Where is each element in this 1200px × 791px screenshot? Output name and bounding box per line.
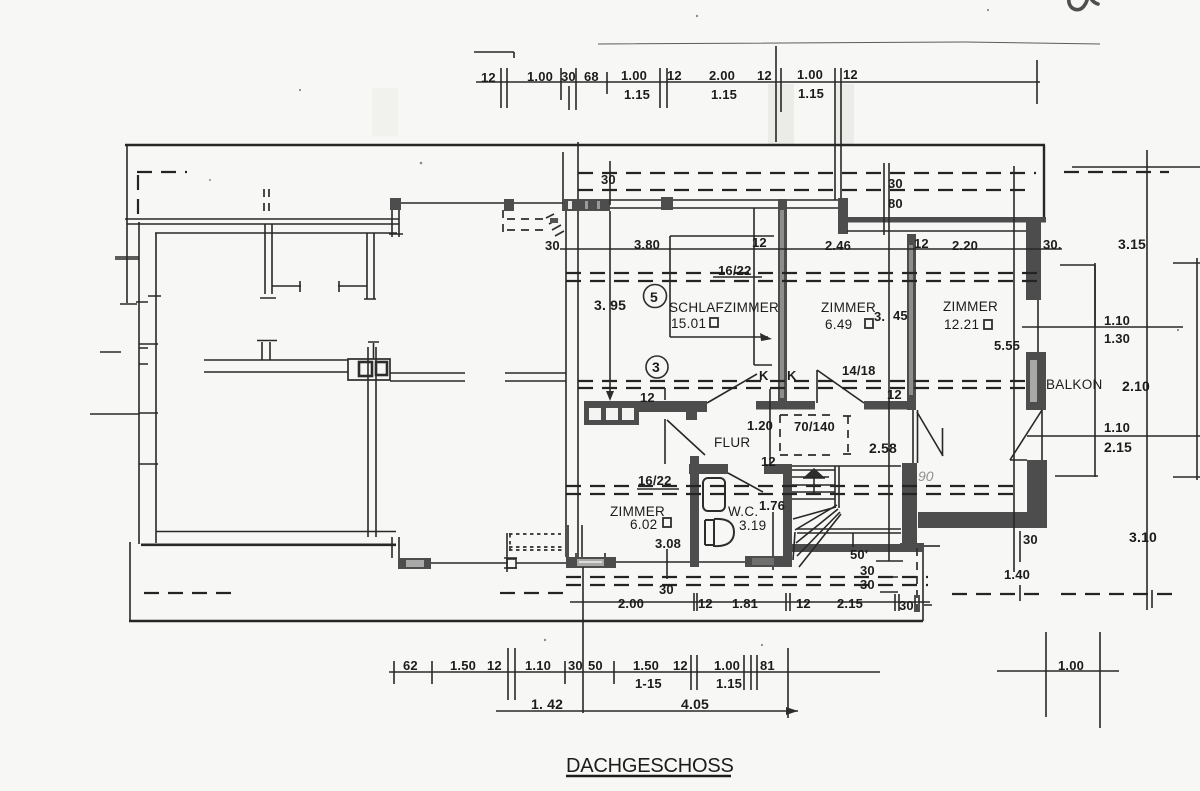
svg-text:2.46: 2.46 — [825, 238, 851, 253]
svg-text:3.19: 3.19 — [739, 518, 766, 533]
svg-text:12.21: 12.21 — [944, 317, 979, 332]
svg-text:5: 5 — [650, 289, 658, 305]
svg-text:3.10: 3.10 — [1129, 529, 1157, 545]
svg-text:12: 12 — [752, 235, 767, 250]
svg-text:68: 68 — [584, 69, 599, 84]
svg-text:3: 3 — [652, 359, 660, 375]
svg-text:1.20: 1.20 — [747, 418, 773, 433]
svg-text:1-15: 1-15 — [635, 676, 662, 691]
svg-text:30: 30 — [601, 172, 616, 187]
svg-text:12: 12 — [640, 390, 655, 405]
svg-text:1.15: 1.15 — [624, 87, 650, 102]
svg-text:12: 12 — [761, 454, 776, 469]
svg-text:16/22: 16/22 — [638, 473, 672, 488]
svg-text:12: 12 — [757, 68, 772, 83]
svg-text:30: 30 — [860, 563, 875, 578]
svg-text:ZIMMER: ZIMMER — [943, 299, 998, 314]
svg-text:45: 45 — [893, 308, 908, 323]
svg-text:3.08: 3.08 — [655, 536, 681, 551]
svg-text:W.C.: W.C. — [728, 504, 758, 519]
svg-text:1.30: 1.30 — [1104, 331, 1130, 346]
svg-text:30.: 30. — [1043, 237, 1062, 252]
svg-text:30: 30 — [1023, 532, 1038, 547]
svg-text:81: 81 — [760, 658, 775, 673]
svg-text:3.15: 3.15 — [1118, 236, 1146, 252]
svg-text:1. 42: 1. 42 — [531, 696, 563, 712]
svg-text:1.50: 1.50 — [633, 658, 659, 673]
svg-text:16/22: 16/22 — [718, 263, 752, 278]
svg-text:1.40: 1.40 — [1004, 567, 1030, 582]
svg-text:2.58: 2.58 — [869, 440, 897, 456]
svg-text:12: 12 — [843, 67, 858, 82]
svg-text:30: 30 — [545, 238, 560, 253]
svg-text:5.55: 5.55 — [994, 338, 1020, 353]
svg-text:1.50: 1.50 — [450, 658, 476, 673]
svg-text:3.80: 3.80 — [634, 237, 660, 252]
svg-text:15.01: 15.01 — [671, 316, 706, 331]
svg-text:1.81: 1.81 — [732, 596, 758, 611]
svg-text:2.20: 2.20 — [952, 238, 978, 253]
svg-text:70/140: 70/140 — [794, 419, 835, 434]
svg-text:SCHLAFZIMMER: SCHLAFZIMMER — [669, 300, 779, 315]
svg-text:12: 12 — [698, 596, 713, 611]
svg-text:1.10: 1.10 — [1104, 420, 1130, 435]
svg-text:1.15: 1.15 — [716, 676, 742, 691]
svg-text:K: K — [787, 368, 797, 383]
svg-text:ZIMMER: ZIMMER — [821, 300, 876, 315]
svg-text:2.00: 2.00 — [709, 68, 735, 83]
svg-text:12: 12 — [887, 387, 902, 402]
svg-text:30: 30 — [899, 598, 914, 613]
svg-text:1.00: 1.00 — [621, 68, 647, 83]
svg-text:1.10: 1.10 — [525, 658, 551, 673]
svg-text:50': 50' — [850, 547, 868, 562]
svg-text:90: 90 — [918, 468, 934, 484]
svg-text:1.10: 1.10 — [1104, 313, 1130, 328]
svg-text:2.00: 2.00 — [618, 596, 644, 611]
svg-text:2.15: 2.15 — [1104, 439, 1132, 455]
svg-text:3.: 3. — [874, 309, 885, 324]
svg-text:FLUR: FLUR — [714, 435, 750, 450]
svg-text:80: 80 — [888, 196, 903, 211]
svg-text:30: 30 — [860, 577, 875, 592]
svg-text:30: 30 — [888, 176, 903, 191]
svg-text:1.15: 1.15 — [711, 87, 737, 102]
svg-text:12: 12 — [487, 658, 502, 673]
svg-text:K: K — [759, 368, 769, 383]
svg-text:30: 30 — [659, 582, 674, 597]
svg-text:62: 62 — [403, 658, 418, 673]
svg-text:12: 12 — [914, 236, 929, 251]
svg-text:14/18: 14/18 — [842, 363, 876, 378]
svg-text:12: 12 — [796, 596, 811, 611]
svg-text:BALKON: BALKON — [1046, 377, 1103, 392]
svg-text:2.10: 2.10 — [1122, 378, 1150, 394]
svg-text:2.15: 2.15 — [837, 596, 863, 611]
svg-text:1.15: 1.15 — [798, 86, 824, 101]
svg-text:1.00: 1.00 — [797, 67, 823, 82]
svg-text:3. 95: 3. 95 — [594, 297, 626, 313]
svg-text:6.02: 6.02 — [630, 517, 657, 532]
svg-text:50: 50 — [588, 658, 603, 673]
svg-text:6.49: 6.49 — [825, 317, 852, 332]
svg-text:12: 12 — [481, 70, 496, 85]
svg-text:12: 12 — [667, 68, 682, 83]
svg-text:30: 30 — [568, 658, 583, 673]
svg-text:1.00: 1.00 — [1058, 658, 1084, 673]
svg-text:DACHGESCHOSS: DACHGESCHOSS — [566, 755, 734, 777]
svg-text:1.00: 1.00 — [714, 658, 740, 673]
svg-text:12: 12 — [673, 658, 688, 673]
svg-text:1.00: 1.00 — [527, 69, 553, 84]
svg-text:1.76: 1.76 — [759, 498, 785, 513]
svg-text:4.05: 4.05 — [681, 696, 709, 712]
svg-text:30: 30 — [561, 69, 576, 84]
